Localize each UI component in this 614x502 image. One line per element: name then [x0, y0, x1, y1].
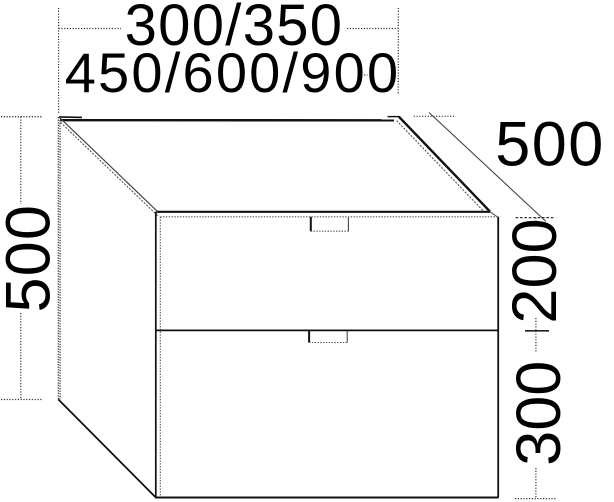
svg-text:500: 500	[495, 110, 605, 180]
svg-text:450/600/900: 450/600/900	[65, 41, 401, 104]
svg-text:500: 500	[0, 204, 64, 313]
svg-text:300: 300	[504, 361, 574, 466]
svg-text:200: 200	[500, 218, 570, 323]
